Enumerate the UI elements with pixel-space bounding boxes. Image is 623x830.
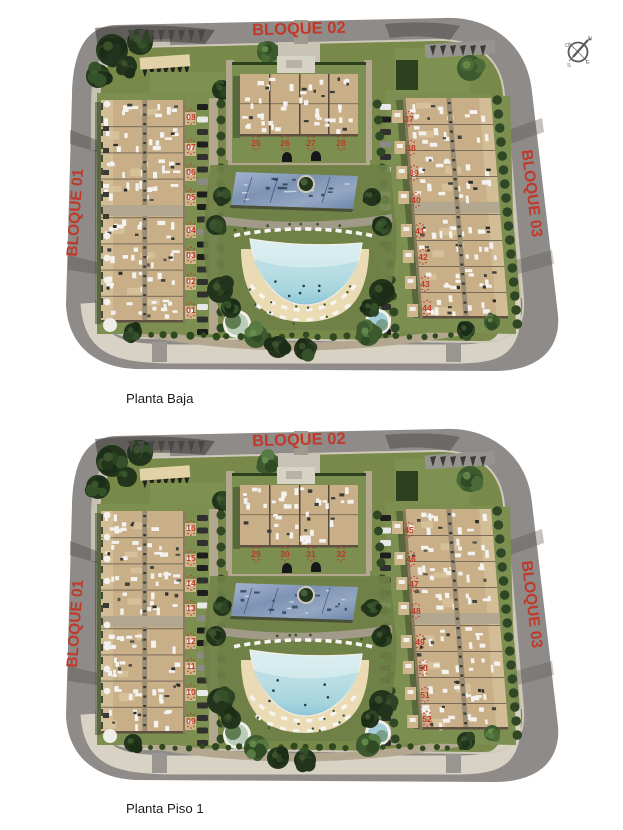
svg-text:48: 48 [411,606,421,616]
svg-text:BLOQUE 02: BLOQUE 02 [252,430,346,450]
svg-text:27: 27 [306,138,316,148]
svg-text:Planta Baja: Planta Baja [126,391,194,406]
svg-text:45: 45 [404,525,414,535]
svg-text:Planta Piso 1: Planta Piso 1 [126,801,204,816]
svg-text:31: 31 [306,549,316,559]
svg-text:BLOQUE 02: BLOQUE 02 [252,19,346,39]
svg-text:51: 51 [420,690,430,700]
svg-text:37: 37 [404,114,414,124]
svg-text:O: O [565,43,570,49]
svg-text:03: 03 [186,250,196,260]
svg-text:39: 39 [409,168,419,178]
svg-text:02: 02 [186,276,196,286]
svg-text:49: 49 [415,637,425,647]
svg-text:40: 40 [411,195,421,205]
svg-text:32: 32 [336,549,346,559]
svg-text:50: 50 [418,663,428,673]
svg-text:06: 06 [186,167,196,177]
svg-text:10: 10 [186,687,196,697]
svg-text:04: 04 [186,225,196,235]
svg-text:07: 07 [186,142,196,152]
svg-text:44: 44 [422,303,432,313]
svg-text:E: E [586,60,590,66]
svg-text:43: 43 [420,279,430,289]
svg-text:25: 25 [251,138,261,148]
svg-text:13: 13 [186,603,196,613]
svg-text:09: 09 [186,716,196,726]
svg-text:38: 38 [406,143,416,153]
svg-text:11: 11 [187,661,196,671]
svg-text:N: N [588,36,592,42]
svg-text:30: 30 [280,549,290,559]
svg-text:26: 26 [280,138,290,148]
svg-text:08: 08 [186,112,196,122]
svg-text:47: 47 [409,579,419,589]
svg-text:15: 15 [186,553,196,563]
svg-text:14: 14 [186,578,196,588]
svg-text:46: 46 [406,554,416,564]
svg-text:28: 28 [336,138,346,148]
svg-text:01: 01 [186,305,196,315]
svg-text:52: 52 [422,714,432,724]
svg-text:05: 05 [186,192,196,202]
svg-text:42: 42 [418,252,428,262]
svg-text:41: 41 [415,226,425,236]
svg-text:12: 12 [186,636,196,646]
svg-text:16: 16 [186,523,196,533]
svg-text:29: 29 [251,549,261,559]
svg-text:S: S [567,63,571,69]
